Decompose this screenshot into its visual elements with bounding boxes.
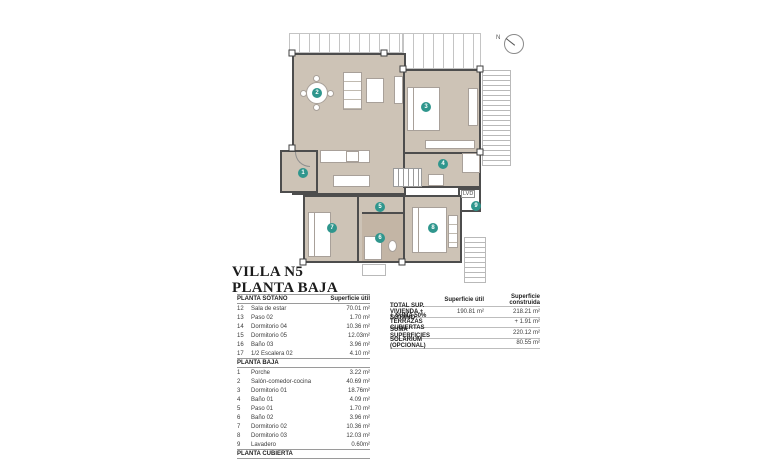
row-value: 3.96 m² xyxy=(350,342,370,348)
room-marker-dorm01: 3 xyxy=(421,102,431,112)
floor-plan: N xyxy=(278,28,530,290)
room-marker-porche: 1 xyxy=(298,168,308,178)
pillow-line xyxy=(418,208,419,252)
table-row: 8Dormitorio 0312.03 m² xyxy=(237,431,370,440)
row-name: Lavadero xyxy=(251,442,351,448)
column-header-util: Superficie útil xyxy=(434,297,484,303)
sink-01 xyxy=(428,174,444,186)
row-value: 10.36 m² xyxy=(346,324,370,330)
row-value: 18.76m² xyxy=(348,388,370,394)
bed-02 xyxy=(308,212,331,257)
row-value: 40.69 m² xyxy=(346,379,370,385)
row-value: 3.22 m² xyxy=(350,370,370,376)
row-value: 10.36 m² xyxy=(346,424,370,430)
row-name: Sala de estar xyxy=(251,306,346,312)
row-num: 15 xyxy=(237,333,251,339)
pillar xyxy=(400,66,407,73)
section-title: PLANTA BAJA xyxy=(237,360,279,366)
row-value: 4.10 m² xyxy=(350,351,370,357)
section-title: PLANTA CUBIERTA xyxy=(237,451,293,457)
page-title: VILLA N5 PLANTA BAJA xyxy=(232,264,338,296)
title-line-1: VILLA N5 xyxy=(232,264,338,280)
summary-cons: 80.55 m² xyxy=(484,340,540,346)
plan-sheet: N xyxy=(0,0,770,460)
row-name: 1/2 Escalera 02 xyxy=(251,351,350,357)
summary-cons: + 1.91 m² xyxy=(484,319,540,325)
row-num: 1 xyxy=(237,370,251,376)
bathtub-01 xyxy=(462,153,480,173)
row-name: Dormitorio 03 xyxy=(251,433,346,439)
north-label: N xyxy=(496,35,500,41)
row-value: 70.01 m² xyxy=(346,306,370,312)
sofa xyxy=(394,76,403,104)
row-value: 0.60m² xyxy=(351,442,370,448)
summary-util: 190.81 m² xyxy=(434,309,484,315)
row-name: Salón-comedor-cocina xyxy=(251,379,346,385)
row-num: 14 xyxy=(237,324,251,330)
table-row: 4Baño 014.09 m² xyxy=(237,395,370,404)
table-row: 3Dormitorio 0118.76m² xyxy=(237,386,370,395)
stove xyxy=(346,151,359,162)
room-marker-salon: 2 xyxy=(312,88,322,98)
kitchen-island xyxy=(333,175,370,187)
wall-bedroom02 xyxy=(357,197,359,261)
table-row: 12Sala de estar70.01 m² xyxy=(237,304,370,313)
summary-label: SOLARIUM (OPCIONAL) xyxy=(390,337,434,349)
row-value: 3.96 m² xyxy=(350,415,370,421)
chair xyxy=(313,104,320,111)
wardrobe-01 xyxy=(468,88,478,126)
table-row: 6Baño 023.96 m² xyxy=(237,413,370,422)
row-num: 17 xyxy=(237,351,251,357)
row-name: Baño 01 xyxy=(251,397,350,403)
table-row: 9Lavadero0.60m² xyxy=(237,440,370,449)
column-header-util: Superficie útil xyxy=(330,296,370,302)
section-title: PLANTA SÓTANO xyxy=(237,296,288,302)
coffee-table xyxy=(366,78,384,103)
wall-bedroom03 xyxy=(403,197,405,261)
table-row: 5Paso 011.70 m² xyxy=(237,404,370,413)
row-name: Baño 03 xyxy=(251,342,350,348)
row-value: 12.03m² xyxy=(348,333,370,339)
row-num: 7 xyxy=(237,424,251,430)
row-value: 4.09 m² xyxy=(350,397,370,403)
toilet-02 xyxy=(388,240,397,252)
room-marker-lavadero: 9 xyxy=(471,201,481,211)
room-marker-bano01: 4 xyxy=(438,159,448,169)
section-header-cubierta: PLANTA CUBIERTA xyxy=(237,449,370,459)
section-header-baja: PLANTA BAJA xyxy=(237,358,370,368)
exterior-stair-southeast xyxy=(464,237,486,283)
entry-step xyxy=(362,264,386,276)
closet-03 xyxy=(448,215,458,248)
laundry-label: LVD xyxy=(461,190,475,198)
row-name: Dormitorio 04 xyxy=(251,324,346,330)
table-row: 16Baño 033.96 m² xyxy=(237,340,370,349)
row-num: 8 xyxy=(237,433,251,439)
row-value: 12.03 m² xyxy=(346,433,370,439)
table-row: 15Dormitorio 0512.03m² xyxy=(237,331,370,340)
shelving-unit xyxy=(343,72,362,110)
interior-stair xyxy=(393,168,422,187)
row-name: Dormitorio 02 xyxy=(251,424,346,430)
row-num: 9 xyxy=(237,442,251,448)
row-num: 4 xyxy=(237,397,251,403)
table-row: 171/2 Escalera 024.10 m² xyxy=(237,349,370,358)
row-num: 2 xyxy=(237,379,251,385)
room-marker-bano02: 6 xyxy=(375,233,385,243)
kitchen-counter xyxy=(320,150,370,163)
pergola-top-right xyxy=(403,33,481,69)
room-marker-dorm03: 8 xyxy=(428,223,438,233)
pillar xyxy=(289,145,296,152)
summary-row: SOLARIUM (OPCIONAL) 80.55 m² xyxy=(390,338,540,349)
table-row: 1Porche3.22 m² xyxy=(237,368,370,377)
exterior-stair-northeast xyxy=(482,70,511,166)
chair xyxy=(313,75,320,82)
table-row: 13Paso 021.70 m² xyxy=(237,313,370,322)
pillar xyxy=(399,259,406,266)
pillar xyxy=(477,66,484,73)
chair xyxy=(300,90,307,97)
row-name: Paso 02 xyxy=(251,315,350,321)
row-num: 13 xyxy=(237,315,251,321)
room-area-table: PLANTA SÓTANO Superficie útil 12Sala de … xyxy=(237,294,370,459)
row-num: 5 xyxy=(237,406,251,412)
table-row: 14Dormitorio 0410.36 m² xyxy=(237,322,370,331)
summary-cons: 218.21 m² xyxy=(484,309,540,315)
pillar xyxy=(477,149,484,156)
summary-table: Superficie útil Superficie construida TO… xyxy=(390,294,540,349)
summary-row: SUMA SUPERFICIES 220.12 m² xyxy=(390,327,540,338)
row-value: 1.70 m² xyxy=(350,315,370,321)
summary-cons: 220.12 m² xyxy=(484,330,540,336)
pillar xyxy=(381,50,388,57)
summary-row: + SUMA 50% TERRAZAS CUBIERTAS + 1.91 m² xyxy=(390,317,540,328)
column-header-construida: Superficie construida xyxy=(484,294,540,306)
bench xyxy=(425,140,475,149)
row-num: 6 xyxy=(237,415,251,421)
row-num: 12 xyxy=(237,306,251,312)
row-name: Baño 02 xyxy=(251,415,350,421)
section-header-sotano: PLANTA SÓTANO Superficie útil xyxy=(237,294,370,304)
row-name: Paso 01 xyxy=(251,406,350,412)
row-name: Dormitorio 01 xyxy=(251,388,348,394)
pillow-line xyxy=(413,88,414,130)
table-row: 2Salón-comedor-cocina40.69 m² xyxy=(237,377,370,386)
row-num: 3 xyxy=(237,388,251,394)
row-value: 1.70 m² xyxy=(350,406,370,412)
pillow-line xyxy=(314,213,315,256)
room-marker-dorm02: 7 xyxy=(327,223,337,233)
pillar xyxy=(289,50,296,57)
chair xyxy=(327,90,334,97)
row-name: Dormitorio 05 xyxy=(251,333,348,339)
room-marker-paso: 5 xyxy=(375,202,385,212)
table-row: 7Dormitorio 0210.36 m² xyxy=(237,422,370,431)
row-name: Porche xyxy=(251,370,350,376)
row-num: 16 xyxy=(237,342,251,348)
